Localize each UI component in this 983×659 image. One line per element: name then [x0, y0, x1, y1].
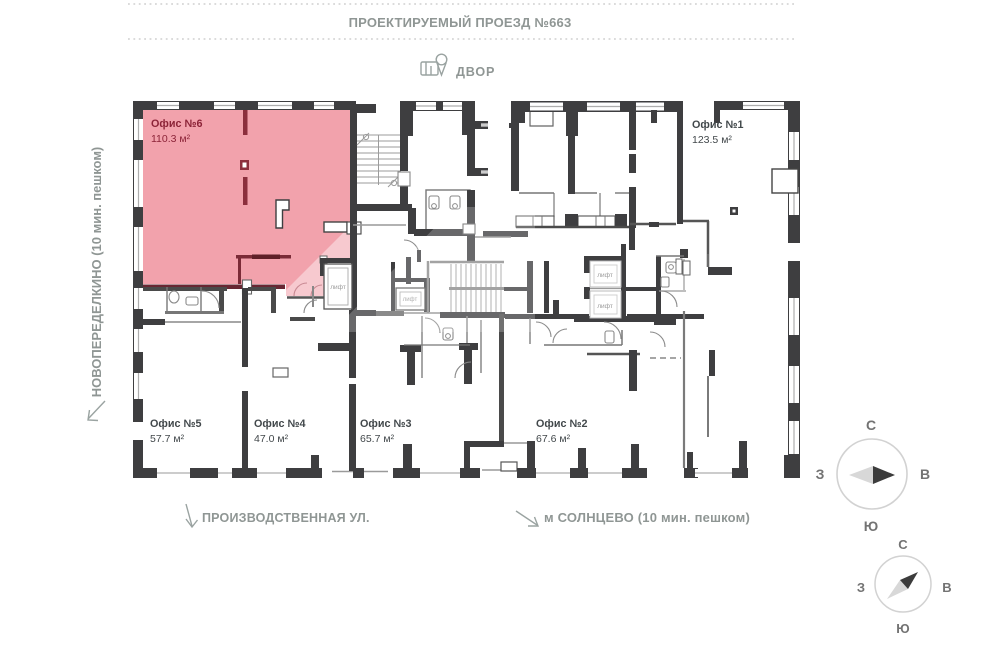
svg-text:Офис №6: Офис №6	[151, 118, 203, 130]
svg-text:110.3 м²: 110.3 м²	[151, 133, 191, 145]
svg-text:65.7 м²: 65.7 м²	[360, 433, 395, 445]
svg-text:ДВОР: ДВОР	[456, 65, 495, 79]
svg-text:ПРОЕКТИРУЕМЫЙ ПРОЕЗД №663: ПРОЕКТИРУЕМЫЙ ПРОЕЗД №663	[349, 15, 572, 30]
svg-text:67.6 м²: 67.6 м²	[536, 433, 571, 445]
svg-text:Офис №5: Офис №5	[150, 418, 202, 430]
svg-text:Офис №4: Офис №4	[254, 418, 306, 430]
svg-text:Офис №1: Офис №1	[692, 119, 744, 131]
svg-text:м СОЛНЦЕВО (10 мин. пешком): м СОЛНЦЕВО (10 мин. пешком)	[544, 510, 750, 525]
svg-text:123.5 м²: 123.5 м²	[692, 134, 732, 146]
svg-text:З: З	[816, 466, 825, 482]
svg-text:С: С	[866, 417, 876, 433]
svg-text:Офис №2: Офис №2	[536, 418, 588, 430]
svg-text:В: В	[920, 466, 930, 482]
svg-text:В: В	[942, 580, 951, 595]
svg-text:Ю: Ю	[864, 518, 878, 534]
svg-text:57.7 м²: 57.7 м²	[150, 433, 185, 445]
svg-text:лифт: лифт	[597, 272, 613, 279]
svg-text:Ю: Ю	[896, 621, 909, 636]
svg-text:ПРОИЗВОДСТВЕННАЯ УЛ.: ПРОИЗВОДСТВЕННАЯ УЛ.	[202, 511, 370, 525]
svg-text:С: С	[898, 537, 908, 552]
svg-text:47.0 м²: 47.0 м²	[254, 433, 289, 445]
svg-text:НОВОПЕРЕДЕЛКИНО (10 мин. пешко: НОВОПЕРЕДЕЛКИНО (10 мин. пешком)	[89, 147, 104, 398]
svg-text:лифт: лифт	[330, 284, 346, 291]
svg-text:З: З	[857, 580, 865, 595]
svg-text:лифт: лифт	[597, 303, 613, 310]
svg-text:Офис №3: Офис №3	[360, 418, 412, 430]
